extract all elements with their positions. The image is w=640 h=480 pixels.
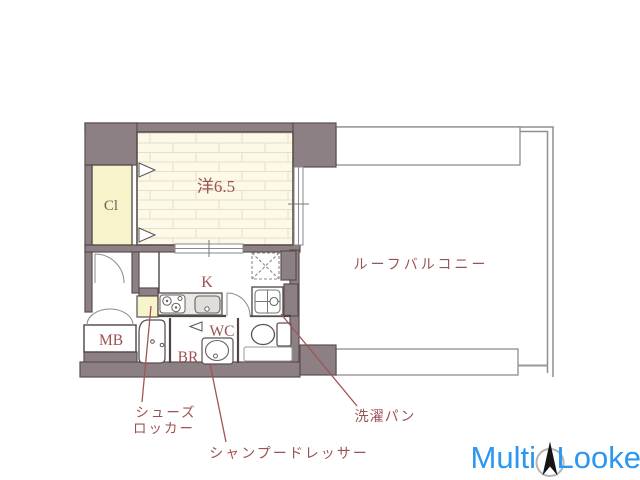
drain-circle bbox=[270, 298, 278, 306]
bathtub bbox=[139, 320, 165, 363]
wall-hall-partition bbox=[132, 252, 139, 293]
washing-pan-label: 洗濯パン bbox=[355, 409, 416, 425]
drain-dot bbox=[205, 307, 209, 311]
shoe-locker-label-line2: ロッカー bbox=[133, 421, 195, 436]
door-swing-arc bbox=[95, 254, 124, 283]
toilet bbox=[252, 323, 292, 346]
toilet-tank bbox=[277, 323, 291, 346]
faucet-dot bbox=[151, 340, 155, 344]
wall-pillar-a bbox=[281, 251, 296, 280]
balcony-inner-border bbox=[520, 132, 548, 374]
wall-pillar-b bbox=[284, 284, 298, 316]
burner-dot bbox=[166, 300, 168, 302]
shampoo-dresser bbox=[202, 338, 233, 364]
shampoo-dresser-label: シャンプードレッサー bbox=[209, 446, 369, 462]
wall-stub-shoe-locker bbox=[139, 288, 158, 296]
balcony-top-strip bbox=[336, 127, 520, 165]
logo-text-left: Multi bbox=[471, 440, 536, 475]
floor-plan-page: 洋6.5 Cl K WC BR MB ルーフバルコニー シューズ ロッカー シャ… bbox=[0, 0, 640, 480]
bathroom-label: BR bbox=[178, 349, 199, 366]
washing-machine-pan bbox=[252, 287, 283, 316]
toilet-label: WC bbox=[210, 323, 235, 340]
door-swing-arc bbox=[227, 293, 250, 316]
roof-balcony-area bbox=[336, 127, 553, 377]
shoe-locker-box bbox=[137, 296, 158, 317]
refrigerator-space bbox=[252, 253, 279, 279]
closet-label: Cl bbox=[104, 198, 118, 214]
wall-block-bottom-right bbox=[300, 345, 336, 375]
kitchen-label: K bbox=[201, 274, 213, 291]
door-swing-arc bbox=[110, 309, 133, 325]
drain-dot bbox=[214, 354, 218, 358]
balcony-label: ルーフバルコニー bbox=[354, 258, 489, 273]
wc-step bbox=[244, 347, 292, 361]
logo-text-right: Looker bbox=[557, 440, 640, 475]
floor-plan-drawing: 洋6.5 Cl K WC BR MB ルーフバルコニー シューズ ロッカー シャ… bbox=[0, 0, 640, 480]
wall-block-top-right bbox=[293, 123, 336, 167]
faucet-dot bbox=[160, 343, 164, 347]
entrance-door bbox=[95, 254, 124, 283]
washroom-door bbox=[227, 293, 250, 316]
toilet-bowl-icon bbox=[252, 325, 275, 345]
burner-dot bbox=[175, 306, 177, 308]
wall-left-upper bbox=[85, 165, 92, 245]
balcony-bottom-strip bbox=[336, 349, 518, 375]
watermark-logo: Multi Looker bbox=[471, 440, 640, 476]
bath-door-marker-icon bbox=[190, 322, 202, 331]
shoe-locker-label-line1: シューズ bbox=[135, 405, 196, 420]
main-room-label: 洋6.5 bbox=[197, 177, 235, 196]
meter-box-label: MB bbox=[99, 332, 123, 349]
wall-under-room-left bbox=[85, 245, 177, 252]
compass-needle-icon bbox=[543, 442, 558, 476]
wall-left-hall bbox=[85, 245, 92, 312]
kitchen-counter bbox=[158, 293, 222, 315]
wall-top-left-chunk bbox=[85, 123, 137, 165]
